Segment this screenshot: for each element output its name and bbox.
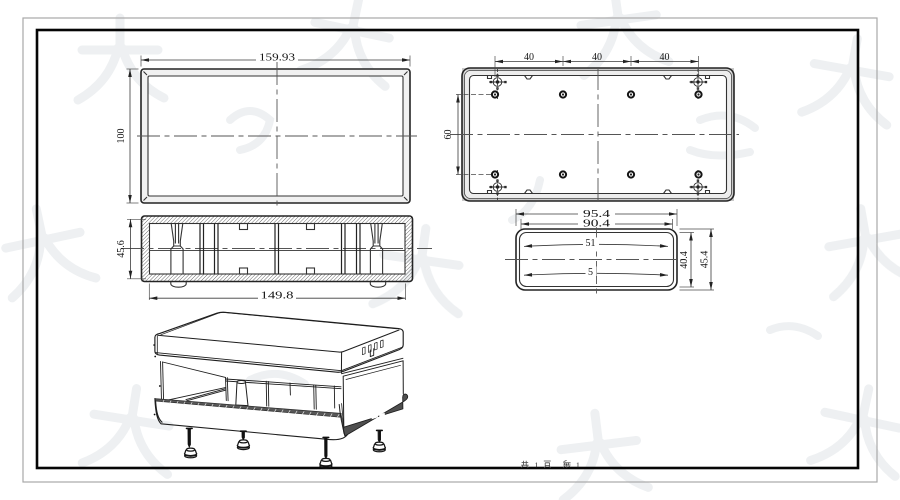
svg-text:40: 40 bbox=[660, 52, 670, 63]
svg-text:51: 51 bbox=[586, 238, 596, 249]
svg-text:159.93: 159.93 bbox=[259, 52, 296, 64]
svg-text:1: 1 bbox=[535, 461, 539, 470]
svg-text:90.4: 90.4 bbox=[583, 217, 611, 229]
svg-text:149.8: 149.8 bbox=[261, 290, 295, 302]
svg-text:40: 40 bbox=[524, 52, 534, 63]
svg-text:40: 40 bbox=[592, 52, 602, 63]
svg-text:1: 1 bbox=[576, 461, 580, 470]
svg-text:5: 5 bbox=[588, 267, 593, 278]
svg-text:60: 60 bbox=[443, 130, 454, 140]
svg-text:100: 100 bbox=[115, 128, 127, 143]
svg-text:40.4: 40.4 bbox=[679, 251, 690, 269]
svg-text:45.4: 45.4 bbox=[700, 251, 711, 269]
svg-text:45.6: 45.6 bbox=[116, 240, 127, 258]
